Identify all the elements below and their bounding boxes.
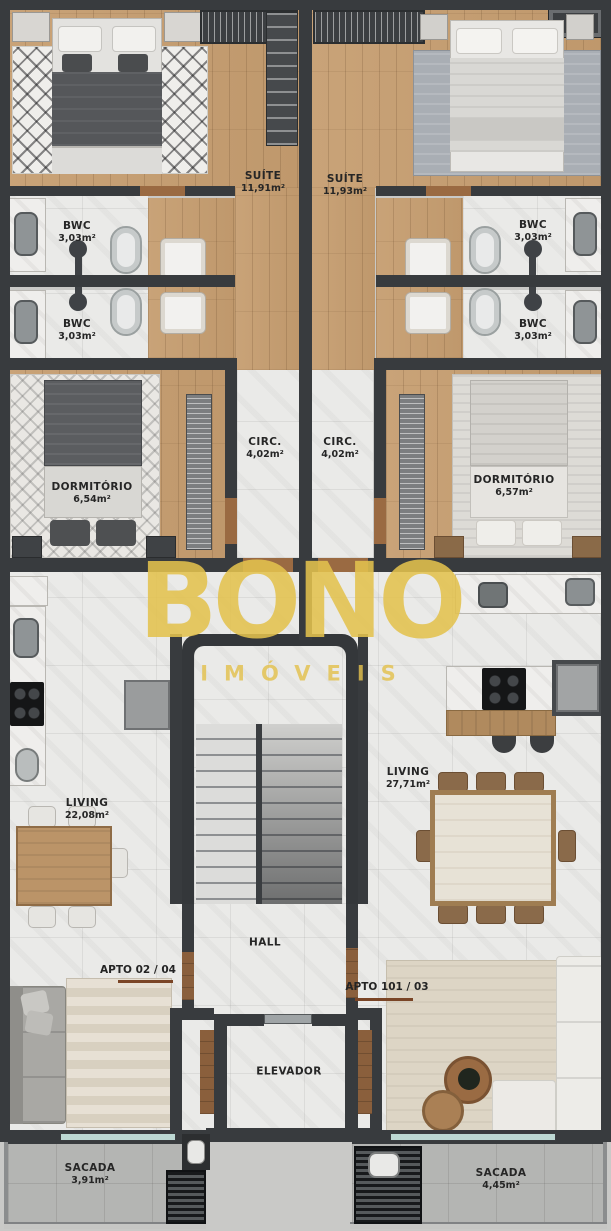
dormitorio-left-nightstand bbox=[12, 536, 42, 558]
kitchen-left-fridge bbox=[124, 680, 170, 730]
dining-chair bbox=[68, 906, 96, 928]
balcony-rail bbox=[4, 1142, 8, 1226]
dining-chair bbox=[438, 772, 468, 792]
wall-zone-left bbox=[8, 358, 235, 370]
kitchen-left-basin bbox=[15, 748, 39, 782]
sofa-right bbox=[556, 956, 604, 1136]
bed-pillow bbox=[512, 28, 558, 54]
suite-right-nightstand bbox=[566, 14, 594, 40]
bathtub bbox=[110, 226, 142, 274]
wall-bwc-divider-left bbox=[8, 275, 235, 287]
bathtub bbox=[469, 226, 501, 274]
toilet-stem bbox=[75, 257, 82, 275]
kitchen-right-sink bbox=[565, 578, 595, 606]
corridor-vanity-sink bbox=[405, 292, 451, 334]
corridor-vanity-sink bbox=[160, 238, 206, 280]
dormitorio-right-bed-duvet bbox=[470, 380, 568, 466]
apto-left-entry-door bbox=[182, 952, 194, 1000]
kitchen-right-fridge bbox=[556, 664, 599, 712]
watermark-brand: BONO bbox=[138, 549, 461, 653]
bed-footer bbox=[52, 146, 162, 174]
coffee-table bbox=[422, 1090, 464, 1132]
bed-pillow bbox=[58, 26, 102, 52]
kitchen-right-bar bbox=[446, 710, 556, 736]
suite-right-wardrobe bbox=[313, 10, 425, 44]
apto-left-label: APTO 02 / 04 bbox=[100, 964, 176, 976]
room-label-bwc-left-bottom: BWC 3,03m² bbox=[58, 318, 96, 342]
apto-right-underline bbox=[355, 998, 413, 1001]
wall-bwc-divider-right bbox=[376, 275, 603, 287]
dormitorio-right-door bbox=[374, 498, 386, 544]
dining-chair bbox=[514, 904, 544, 924]
kitchen-left-sink bbox=[13, 618, 39, 658]
dormitorio-left-door bbox=[225, 498, 237, 544]
room-label-circ-left: CIRC. 4,02m² bbox=[246, 436, 284, 460]
core-wall bbox=[170, 1008, 182, 1142]
core-wall bbox=[170, 1008, 214, 1020]
bed-accent-pillow bbox=[62, 54, 92, 72]
suite-left-closet bbox=[266, 12, 298, 146]
room-label-suite-right: SUÍTE 11,93m² bbox=[323, 173, 367, 197]
bed-pillow bbox=[112, 26, 156, 52]
sofa-left-backrest bbox=[8, 986, 23, 1124]
dining-chair bbox=[558, 830, 576, 862]
sofa-pillow bbox=[24, 1010, 53, 1036]
bwc-sink bbox=[14, 300, 38, 344]
suite-left-nightstand bbox=[12, 12, 50, 42]
apto-right-label: APTO 101 / 03 bbox=[345, 981, 428, 993]
suite-left-nightstand bbox=[164, 12, 202, 42]
room-label-living-right: LIVING 27,71m² bbox=[386, 766, 430, 790]
window-right bbox=[390, 1133, 556, 1141]
core-side-door bbox=[358, 1030, 372, 1114]
sofa-right-chaise bbox=[492, 1080, 556, 1136]
bwc-sink bbox=[573, 212, 597, 256]
dormitorio-right-nightstand bbox=[572, 536, 602, 558]
dining-table-right bbox=[430, 790, 556, 906]
bed-pillow bbox=[50, 520, 90, 546]
room-label-bwc-left-top: BWC 3,03m² bbox=[58, 220, 96, 244]
elevator-wall bbox=[345, 1014, 358, 1140]
kitchen-right-sink bbox=[478, 582, 508, 608]
corridor-right-floor bbox=[311, 188, 375, 370]
stair-flight-down bbox=[262, 724, 342, 904]
wall-suite-right bbox=[471, 186, 603, 196]
corridor-vanity-sink bbox=[160, 292, 206, 334]
plant-icon bbox=[458, 1068, 480, 1090]
core-wall bbox=[170, 634, 182, 904]
bathtub bbox=[469, 288, 501, 336]
wall-zone-right bbox=[376, 358, 603, 370]
bed-pillow bbox=[96, 520, 136, 546]
room-label-dormitorio-left: DORMITÓRIO 6,54m² bbox=[51, 481, 132, 505]
bed-pillow bbox=[522, 520, 562, 546]
louver-unit-left bbox=[166, 1170, 206, 1224]
toilet-icon bbox=[524, 293, 542, 311]
hall-wall bbox=[346, 904, 358, 948]
hall-wall bbox=[182, 904, 194, 952]
cooktop-icon bbox=[10, 682, 44, 726]
elevator-door bbox=[264, 1014, 312, 1024]
room-label-elevador: ELEVADOR bbox=[256, 1066, 322, 1079]
dining-chair bbox=[514, 772, 544, 792]
core-side-door bbox=[200, 1030, 214, 1114]
bwc-sink bbox=[14, 212, 38, 256]
stair-flight-up bbox=[196, 724, 256, 904]
dining-chair bbox=[438, 904, 468, 924]
bed-duvet bbox=[52, 72, 162, 146]
toilet-stem bbox=[529, 257, 536, 275]
room-label-sacada-left: SACADA 3,91m² bbox=[65, 1162, 116, 1186]
elevator-wall bbox=[206, 1128, 372, 1142]
bed-blanket bbox=[450, 118, 564, 140]
bed-pillow bbox=[476, 520, 516, 546]
room-label-living-left: LIVING 22,08m² bbox=[65, 797, 109, 821]
dining-chair bbox=[28, 806, 56, 828]
cooktop-icon bbox=[482, 668, 526, 710]
suite-left-door bbox=[140, 186, 185, 196]
elevator-wall bbox=[214, 1014, 227, 1140]
bed-accent-pillow bbox=[118, 54, 148, 72]
room-label-dormitorio-right: DORMITÓRIO 6,57m² bbox=[473, 474, 554, 498]
circ-left-floor bbox=[237, 370, 299, 558]
wall-suite-right bbox=[376, 186, 426, 196]
room-label-suite-left: SUÍTE 11,91m² bbox=[241, 170, 285, 194]
apto-left-underline bbox=[118, 980, 173, 983]
dormitorio-left-closet bbox=[186, 394, 212, 550]
floor-plan: SUÍTE 11,91m² SUÍTE 11,93m² BWC 3,03m² B… bbox=[0, 0, 611, 1231]
room-label-circ-right: CIRC. 4,02m² bbox=[321, 436, 359, 460]
room-label-bwc-right-top: BWC 3,03m² bbox=[514, 219, 552, 243]
balcony-rail bbox=[603, 1142, 607, 1226]
room-label-hall: HALL bbox=[249, 937, 281, 950]
dining-chair bbox=[28, 906, 56, 928]
utility-sink bbox=[187, 1140, 205, 1164]
wall-circ-left bbox=[225, 358, 237, 498]
living-left-rug bbox=[66, 978, 172, 1128]
watermark-tagline: IMÓVEIS bbox=[200, 664, 412, 685]
corridor-left-floor bbox=[235, 188, 299, 370]
bathtub bbox=[110, 288, 142, 336]
stair-stringer bbox=[256, 724, 262, 904]
window-left bbox=[60, 1133, 176, 1141]
room-label-sacada-right: SACADA 4,45m² bbox=[476, 1167, 527, 1191]
kitchen-left-counter-top bbox=[8, 576, 48, 606]
dormitorio-right-closet bbox=[399, 394, 425, 550]
dining-chair bbox=[476, 904, 506, 924]
circ-right-floor bbox=[311, 370, 373, 558]
toilet-icon bbox=[69, 293, 87, 311]
corridor-vanity-sink bbox=[405, 238, 451, 280]
utility-sink bbox=[368, 1152, 400, 1178]
bwc-sink bbox=[573, 300, 597, 344]
room-label-bwc-right-bottom: BWC 3,03m² bbox=[514, 318, 552, 342]
dormitorio-left-bed-duvet bbox=[44, 380, 142, 466]
suite-right-nightstand bbox=[420, 14, 448, 40]
dining-table-left bbox=[16, 826, 112, 906]
wall-circ-right bbox=[374, 358, 386, 498]
bed-pillow bbox=[456, 28, 502, 54]
dining-chair bbox=[476, 772, 506, 792]
wall-suite-left bbox=[185, 186, 235, 196]
suite-right-door bbox=[426, 186, 471, 196]
wall-suite-left bbox=[8, 186, 140, 196]
